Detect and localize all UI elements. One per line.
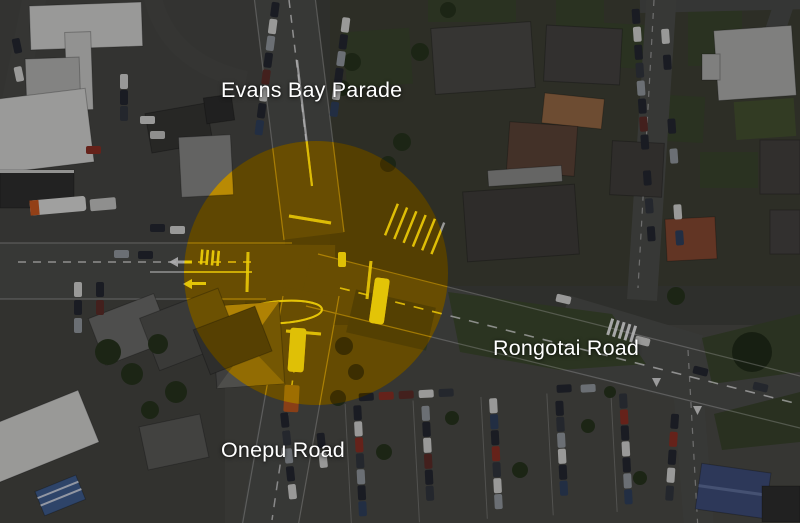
- aerial-map: Evans Bay Parade Rongotai Road Onepu Roa…: [0, 0, 800, 523]
- road-label-rongotai-road: Rongotai Road: [493, 336, 639, 361]
- highlight-circle-glow: [184, 141, 448, 405]
- intersection-highlight: [184, 141, 448, 405]
- road-label-evans-bay-parade: Evans Bay Parade: [221, 78, 402, 103]
- road-label-onepu-road: Onepu Road: [221, 438, 345, 463]
